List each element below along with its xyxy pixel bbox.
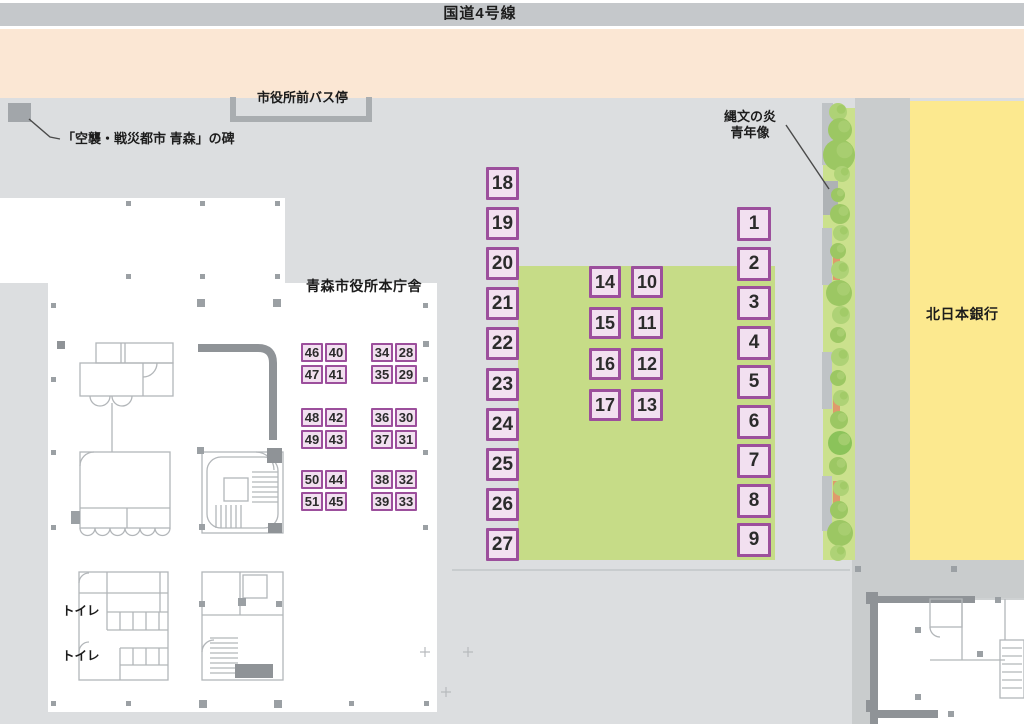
stall-34: 34 (371, 343, 393, 362)
stall-45: 45 (325, 492, 347, 511)
stall-1: 1 (737, 207, 771, 241)
stall-43: 43 (325, 430, 347, 449)
stall-24: 24 (486, 408, 519, 441)
stall-25: 25 (486, 448, 519, 481)
stall-22: 22 (486, 327, 519, 360)
stall-47: 47 (301, 365, 323, 384)
stall-51: 51 (301, 492, 323, 511)
stall-11: 11 (631, 307, 663, 339)
stall-4: 4 (737, 326, 771, 360)
stall-42: 42 (325, 408, 347, 427)
stall-17: 17 (589, 389, 621, 421)
stall-28: 28 (395, 343, 417, 362)
stall-15: 15 (589, 307, 621, 339)
stall-2: 2 (737, 247, 771, 281)
stall-7: 7 (737, 444, 771, 478)
stall-32: 32 (395, 470, 417, 489)
stall-5: 5 (737, 365, 771, 399)
stall-20: 20 (486, 247, 519, 280)
stall-39: 39 (371, 492, 393, 511)
stall-38: 38 (371, 470, 393, 489)
stall-41: 41 (325, 365, 347, 384)
site-map: 国道4号線 市役所前バス停 「空襲・戦災都市 青森」の碑 縄文の炎 青年像 青森… (0, 0, 1024, 724)
stall-44: 44 (325, 470, 347, 489)
stall-18: 18 (486, 167, 519, 200)
stall-49: 49 (301, 430, 323, 449)
stall-30: 30 (395, 408, 417, 427)
stall-19: 19 (486, 207, 519, 240)
stall-40: 40 (325, 343, 347, 362)
stall-29: 29 (395, 365, 417, 384)
stall-13: 13 (631, 389, 663, 421)
stall-36: 36 (371, 408, 393, 427)
stall-16: 16 (589, 348, 621, 380)
stall-21: 21 (486, 287, 519, 320)
stall-37: 37 (371, 430, 393, 449)
stall-27: 27 (486, 528, 519, 561)
stall-12: 12 (631, 348, 663, 380)
stall-14: 14 (589, 266, 621, 298)
stall-48: 48 (301, 408, 323, 427)
stall-31: 31 (395, 430, 417, 449)
stall-33: 33 (395, 492, 417, 511)
stall-3: 3 (737, 286, 771, 320)
stall-26: 26 (486, 488, 519, 521)
stall-markers: 1819202122232425262712345678914101511161… (0, 0, 1024, 724)
stall-46: 46 (301, 343, 323, 362)
stall-9: 9 (737, 523, 771, 557)
stall-35: 35 (371, 365, 393, 384)
stall-6: 6 (737, 405, 771, 439)
stall-10: 10 (631, 266, 663, 298)
stall-23: 23 (486, 368, 519, 401)
stall-8: 8 (737, 484, 771, 518)
stall-50: 50 (301, 470, 323, 489)
